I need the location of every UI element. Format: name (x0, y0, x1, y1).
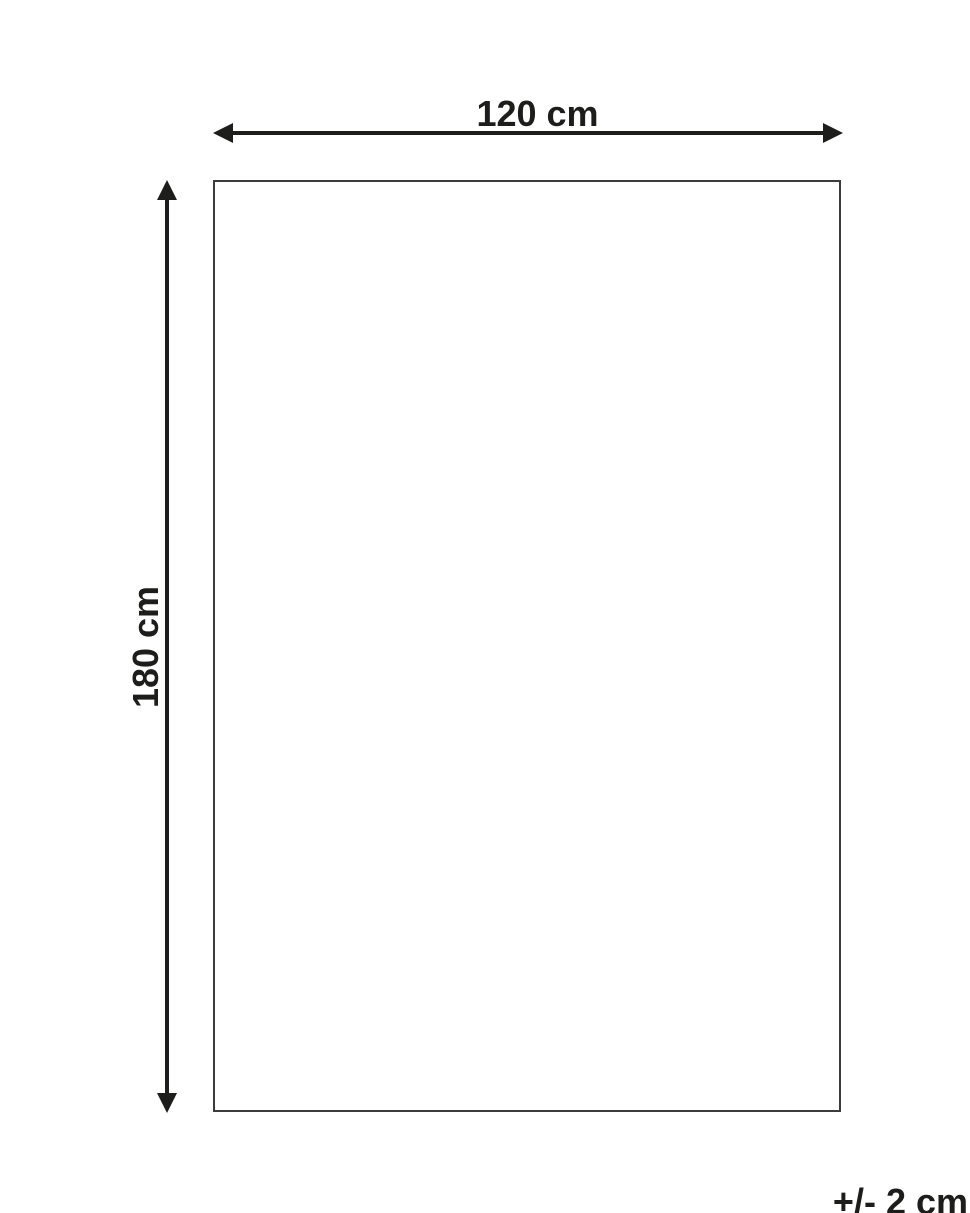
dimension-diagram: 120 cm 180 cm +/- 2 cm (0, 0, 970, 1213)
height-arrowhead-top (157, 180, 177, 200)
tolerance-label: +/- 2 cm (833, 1184, 968, 1213)
height-dimension-arrow (150, 179, 184, 1114)
width-arrowhead-right (823, 123, 843, 143)
product-outline-rectangle (213, 180, 841, 1112)
width-arrowhead-left (213, 123, 233, 143)
width-dimension-arrow (212, 116, 844, 150)
height-arrowhead-bottom (157, 1093, 177, 1113)
